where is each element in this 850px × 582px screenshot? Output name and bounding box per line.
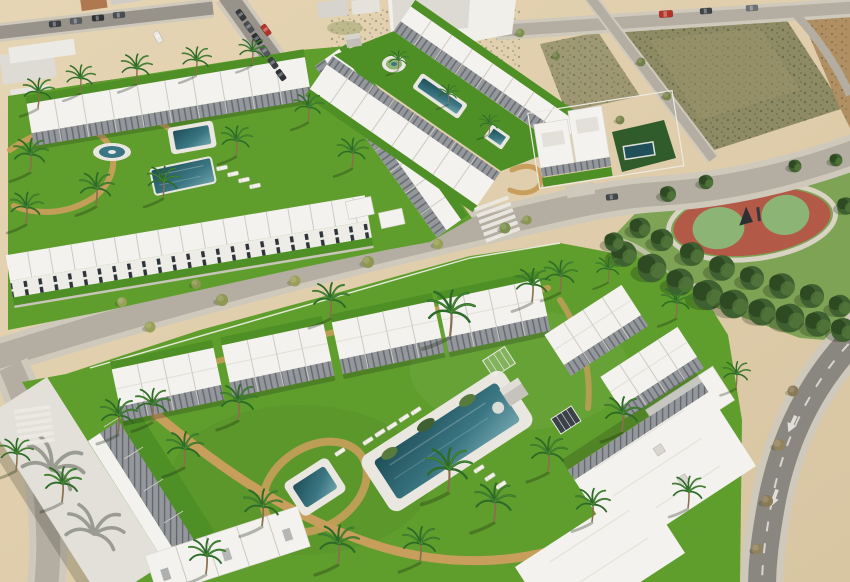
aerial-view	[0, 0, 850, 582]
car	[92, 14, 104, 21]
car	[606, 193, 619, 200]
aerial-render-stage	[0, 0, 850, 582]
complex-2-fountain	[382, 56, 406, 73]
car	[113, 11, 125, 18]
car	[700, 8, 712, 15]
utility-shed	[345, 33, 362, 48]
town-building	[317, 0, 349, 18]
car	[49, 20, 61, 27]
car	[659, 10, 673, 18]
car	[746, 5, 758, 12]
complex-1-pond	[93, 143, 131, 161]
car	[70, 17, 82, 24]
